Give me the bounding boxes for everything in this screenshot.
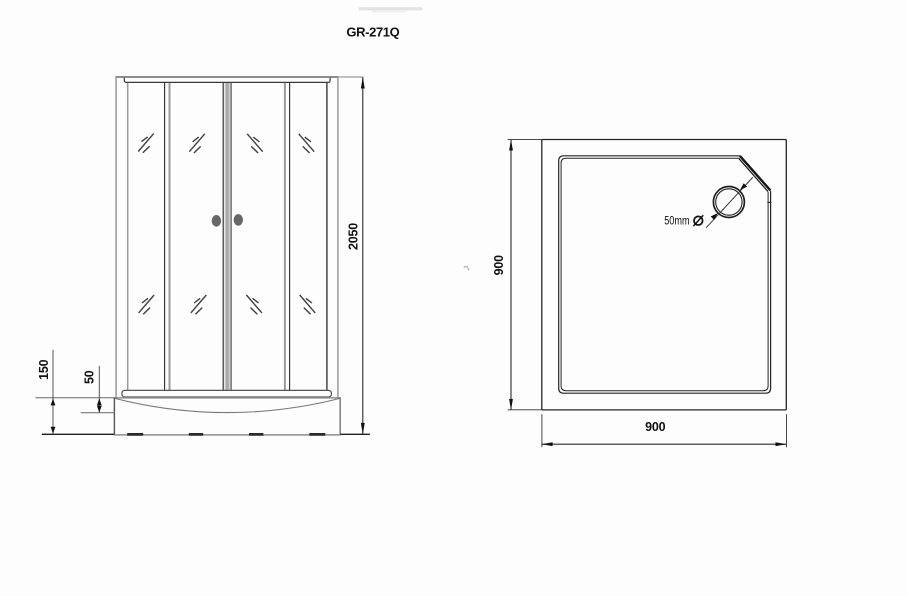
- svg-text:150: 150: [37, 359, 51, 380]
- svg-text:GR-271Q: GR-271Q: [346, 25, 399, 40]
- svg-text:900: 900: [645, 420, 666, 434]
- svg-text:50mm: 50mm: [664, 214, 689, 227]
- svg-text:2050: 2050: [346, 223, 360, 250]
- svg-text:50: 50: [82, 370, 96, 384]
- svg-text:900: 900: [492, 255, 506, 276]
